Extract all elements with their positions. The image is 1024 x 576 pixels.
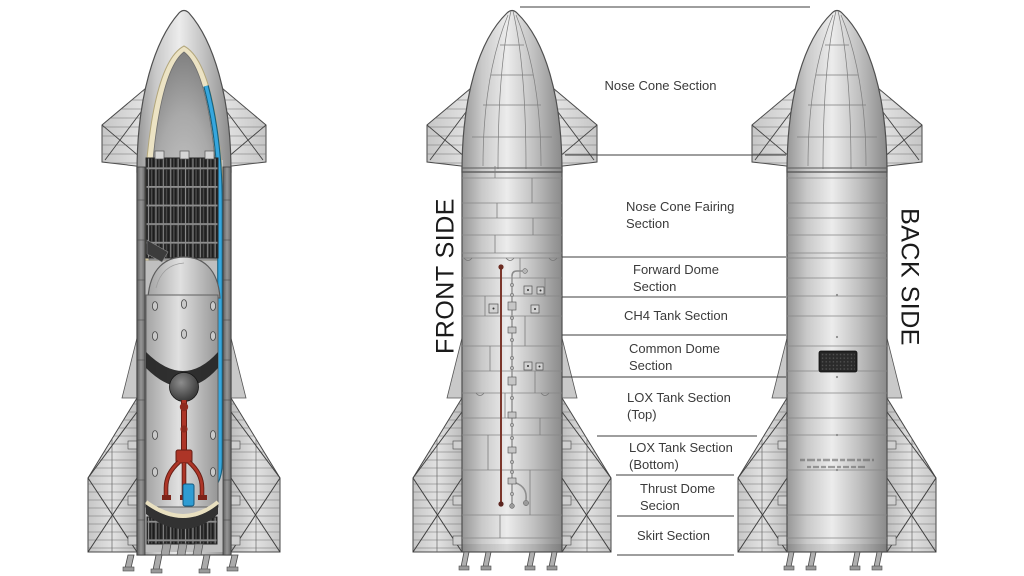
diagram-canvas: Nose Cone Section Nose Cone Fairing Sect…	[0, 0, 1024, 576]
blue-pipe-fitting	[183, 484, 194, 506]
section-label-thrust-dome: Thrust Dome Secion	[640, 480, 740, 514]
section-label-common-dome: Common Dome Section	[629, 340, 737, 374]
cut-wall-left	[137, 167, 145, 555]
starship-sections-diagram	[0, 0, 1024, 576]
front-side-label: FRONT SIDE	[432, 198, 461, 354]
cut-wall-right	[223, 167, 231, 555]
section-label-ch4-tank: CH4 Tank Section	[624, 307, 774, 324]
section-label-nose-cone: Nose Cone Section	[578, 77, 743, 94]
cutaway-view-rocket	[85, 11, 283, 574]
section-label-nose-cone-fairing: Nose Cone Fairing Section	[626, 198, 756, 232]
landing-legs	[123, 555, 238, 573]
engine-hints	[161, 544, 203, 555]
section-label-skirt: Skirt Section	[637, 527, 767, 544]
header-tank-sphere	[170, 373, 199, 402]
cargo-rack-grid	[146, 158, 218, 258]
section-label-lox-tank-top: LOX Tank Section (Top)	[627, 389, 745, 423]
rack-top-vents	[155, 151, 214, 159]
section-label-lox-tank-bottom: LOX Tank Section (Bottom)	[629, 439, 749, 473]
heat-shield-tile-patch	[819, 351, 857, 372]
section-label-forward-dome: Forward Dome Section	[633, 261, 735, 295]
back-side-label: BACK SIDE	[895, 208, 924, 346]
